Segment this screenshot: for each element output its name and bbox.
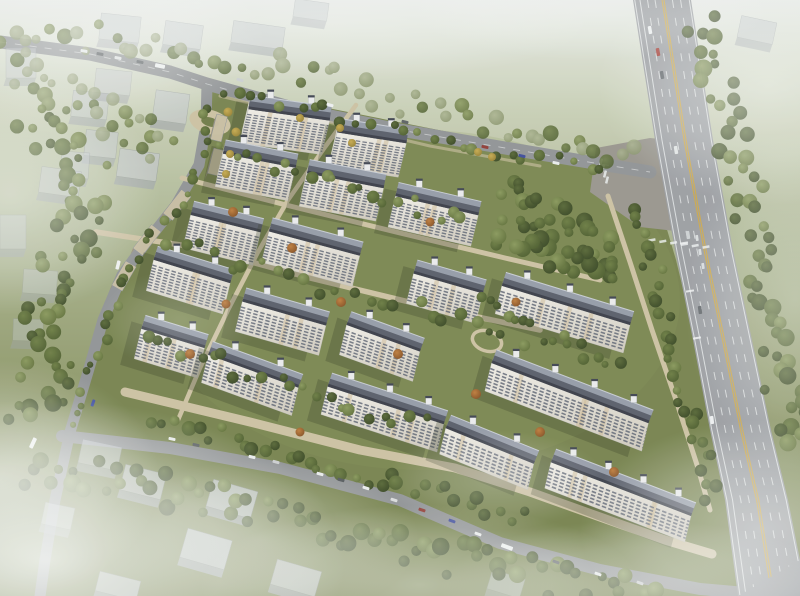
fog-layer (0, 0, 800, 596)
aerial-rendering: Aerial architectural rendering of a larg… (0, 0, 800, 596)
scene-svg (0, 0, 800, 596)
